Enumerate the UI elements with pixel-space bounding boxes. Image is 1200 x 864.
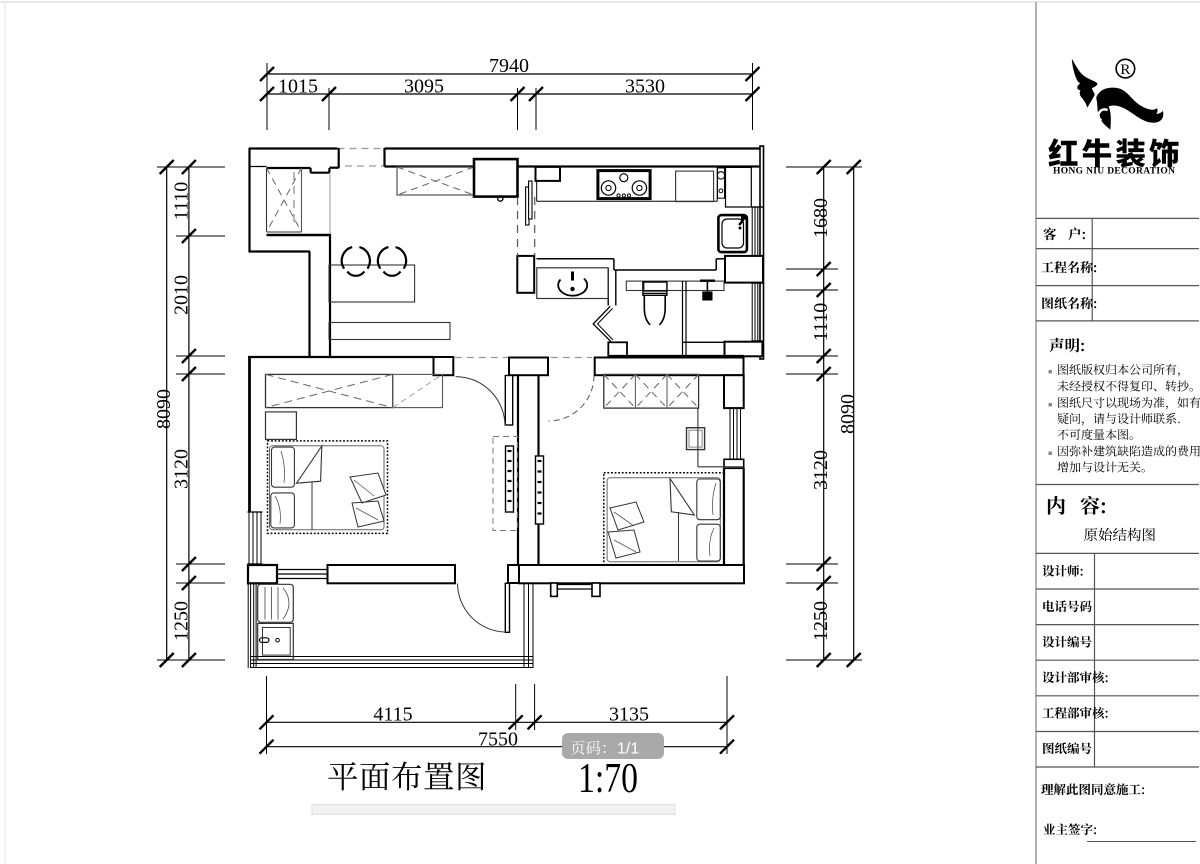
- svg-text:7550: 7550: [478, 729, 518, 751]
- svg-text:1:70: 1:70: [578, 756, 638, 802]
- svg-text:1015: 1015: [278, 76, 318, 98]
- svg-text:3530: 3530: [625, 76, 665, 98]
- svg-text:1250: 1250: [171, 601, 193, 641]
- svg-text:1110: 1110: [171, 182, 193, 221]
- svg-text:1250: 1250: [810, 601, 832, 641]
- svg-text:R: R: [1120, 62, 1130, 78]
- svg-text:3120: 3120: [810, 450, 832, 490]
- svg-text:2010: 2010: [171, 275, 193, 315]
- svg-text:1110: 1110: [810, 303, 832, 342]
- svg-text:1680: 1680: [810, 198, 832, 238]
- svg-text:3120: 3120: [171, 449, 193, 489]
- svg-text:7940: 7940: [489, 55, 529, 77]
- svg-text:1/1: 1/1: [617, 741, 639, 758]
- svg-text:3135: 3135: [609, 704, 649, 726]
- svg-text:4115: 4115: [373, 704, 412, 726]
- svg-text:8090: 8090: [153, 389, 175, 429]
- svg-text:8090: 8090: [837, 394, 859, 434]
- svg-text:3095: 3095: [404, 76, 444, 98]
- svg-text:HONG NIU DECORATION: HONG NIU DECORATION: [1053, 167, 1175, 177]
